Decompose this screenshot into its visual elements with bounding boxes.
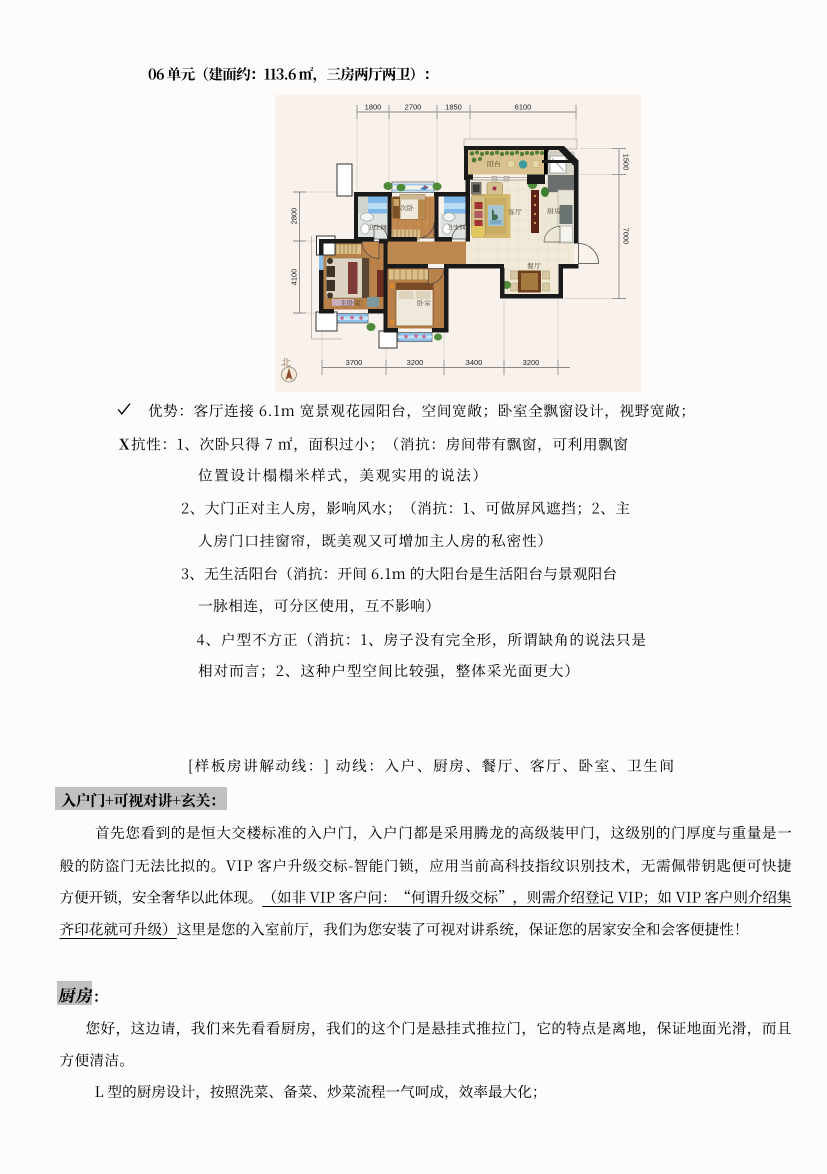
svg-text:4100: 4100 <box>290 269 299 286</box>
svg-text:1800: 1800 <box>365 103 382 112</box>
svg-text:3200: 3200 <box>523 358 540 367</box>
svg-text:3400: 3400 <box>466 358 483 367</box>
svg-text:1850: 1850 <box>445 103 462 112</box>
svg-text:2800: 2800 <box>290 208 299 225</box>
svg-text:6100: 6100 <box>515 103 532 112</box>
svg-text:3200: 3200 <box>407 358 424 367</box>
svg-text:3700: 3700 <box>346 358 363 367</box>
svg-text:2700: 2700 <box>405 103 422 112</box>
svg-text:7000: 7000 <box>622 228 631 245</box>
svg-text:1500: 1500 <box>622 154 631 171</box>
